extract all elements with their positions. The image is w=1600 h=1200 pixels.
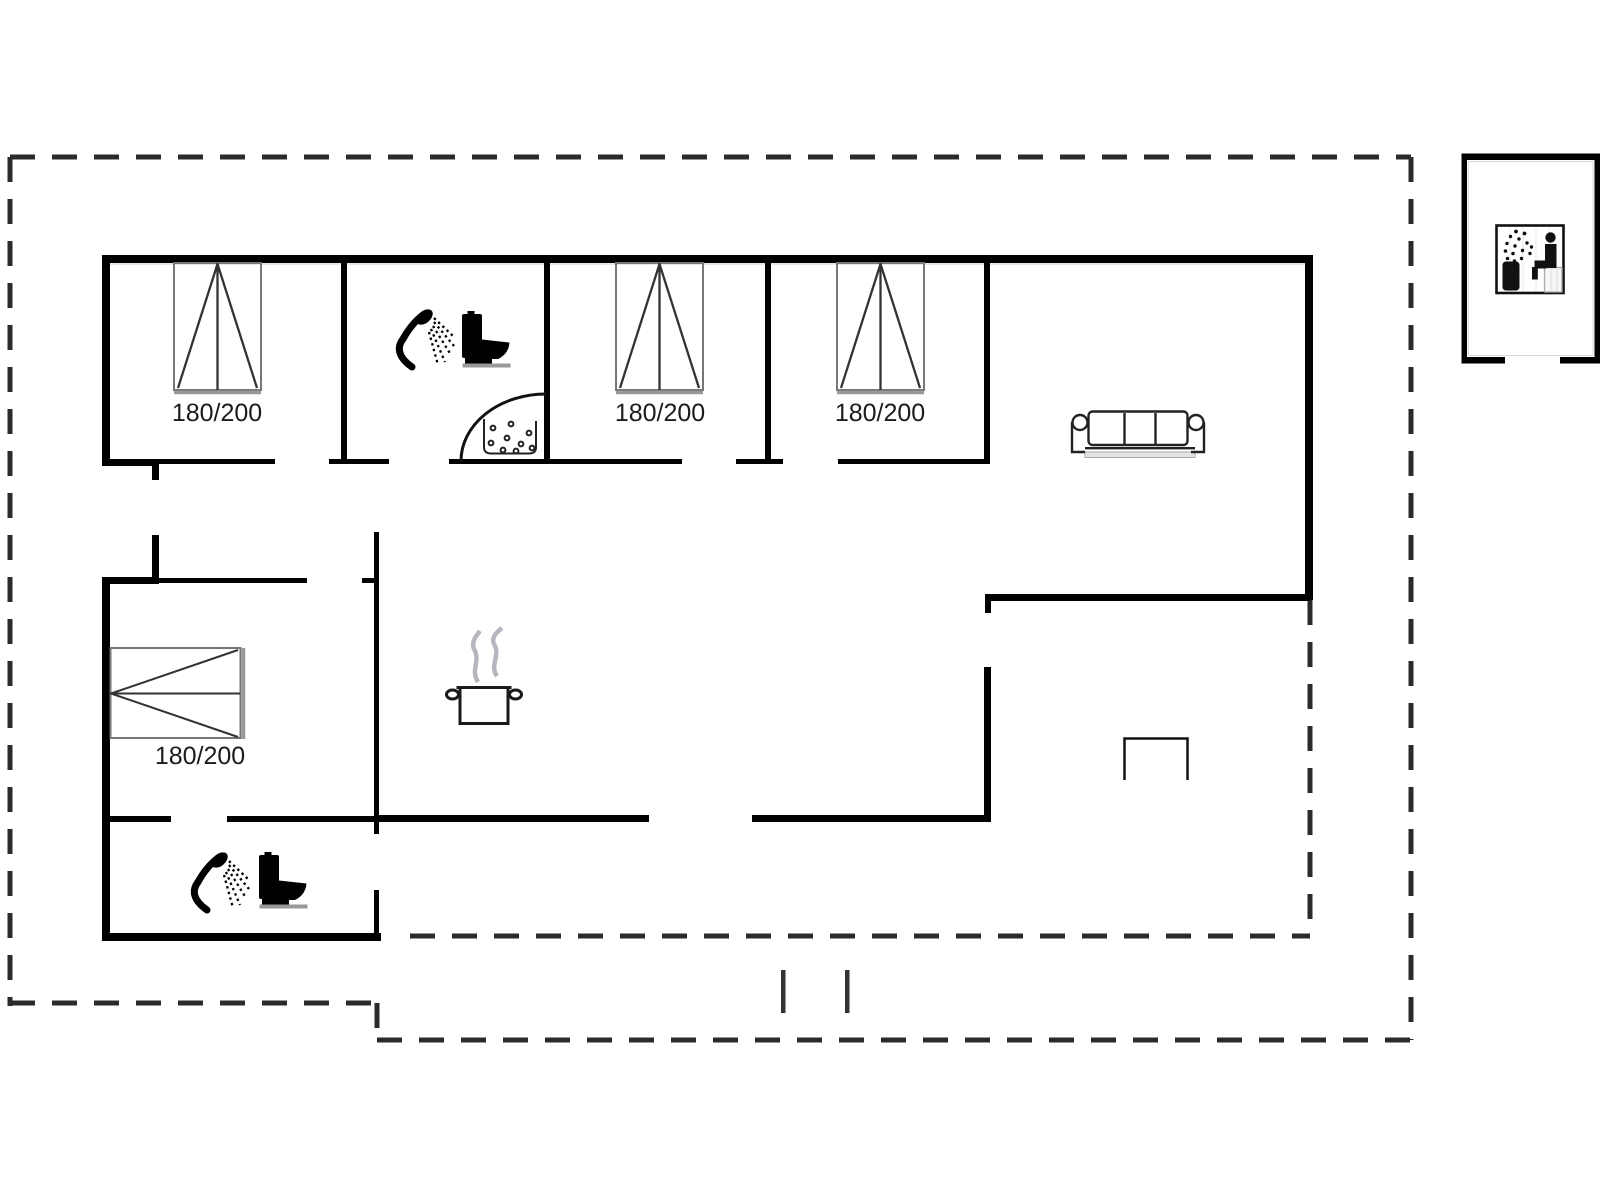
svg-text:180/200: 180/200 (615, 399, 705, 427)
svg-text:180/200: 180/200 (172, 399, 262, 427)
svg-text:180/200: 180/200 (155, 742, 245, 770)
svg-text:180/200: 180/200 (835, 399, 925, 427)
